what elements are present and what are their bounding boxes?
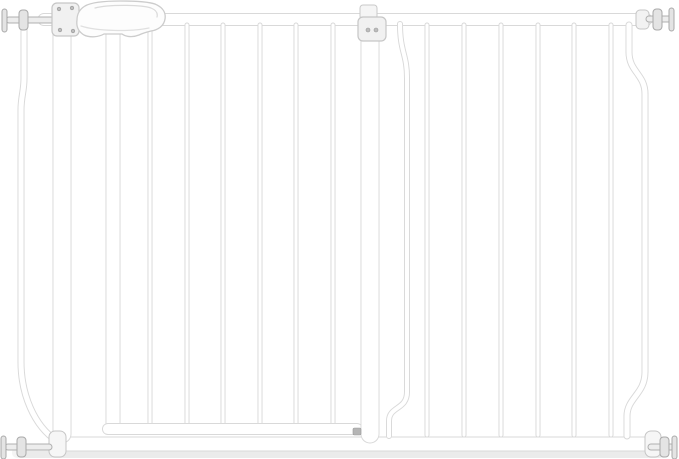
hinge-plate-screw-2 xyxy=(70,6,74,10)
extension-clamp-screw-2 xyxy=(374,28,378,32)
pressure-bolt-bottom-left-disc xyxy=(17,437,26,457)
door-bottom-latch-pin xyxy=(353,428,361,435)
right-outer-bent-bar xyxy=(627,25,645,436)
floor-shadow xyxy=(22,451,662,458)
pressure-bolt-bottom-left-handle xyxy=(1,436,6,459)
hinge-plate-screw-3 xyxy=(58,28,62,32)
extension-offset-bar xyxy=(389,24,407,436)
pressure-bolt-top-left-spindle xyxy=(6,17,56,23)
pressure-bolt-bottom-right-disc xyxy=(660,437,669,457)
extension-clamp-plate xyxy=(358,17,386,41)
pressure-bolt-top-left-handle xyxy=(2,9,7,32)
product-photo-baby-gate xyxy=(0,0,679,459)
pressure-bolt-top-right-disc xyxy=(653,9,662,30)
extension-clamp-screw-1 xyxy=(366,28,370,32)
latch-handle-body xyxy=(77,1,165,37)
bottom-rail-left-cap xyxy=(49,431,66,457)
gate-graphic xyxy=(0,0,679,459)
pressure-bolt-bottom-left-spindle xyxy=(5,444,52,450)
pressure-bolt-bottom-right-handle xyxy=(672,436,677,459)
left-outer-bent-bar xyxy=(21,28,57,441)
hinge-plate-screw-4 xyxy=(71,29,75,33)
pressure-bolt-top-right-handle xyxy=(669,8,674,31)
hinge-plate-screw-1 xyxy=(57,7,61,11)
pressure-bolt-top-left-disc xyxy=(19,10,28,30)
